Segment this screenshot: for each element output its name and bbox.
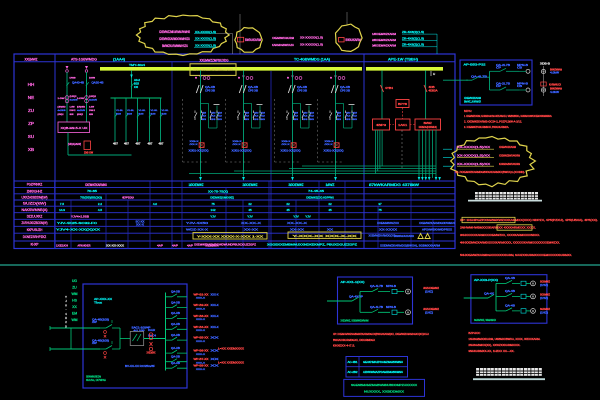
svg-text:(UR)GE2: (UR)GE2: [77, 107, 86, 109]
svg-text:SGBMWZ, WMAMXX: SGBMWZ, WMAMXX: [474, 318, 496, 322]
svg-text:1NHSGBMXXKARM, USBMXXBWXA, XXX: 1NHSGBMXXKARM, USBMXXBWXA, XXXX, WZXXKAR…: [468, 337, 540, 341]
svg-text:V1-BL: V1-BL: [162, 110, 170, 112]
svg-text:EM: EM: [72, 312, 77, 316]
svg-text:WP-B7-XX: WP-B7-XX: [194, 358, 209, 361]
svg-text:KM: KM: [211, 113, 215, 115]
svg-text:4AP: 4AP: [187, 243, 193, 247]
svg-text:4AP: 4AP: [157, 243, 163, 247]
svg-text:XX: XX: [211, 351, 220, 353]
svg-text:NU0.5m, 1X7WPAH: NU0.5m, 1X7WPAH: [86, 378, 106, 382]
svg-text:4x25/5: 4x25/5: [77, 110, 86, 112]
svg-text:TMY-40x4: TMY-40x4: [129, 63, 146, 67]
svg-text:KARMDGBWXAKARM: KARMDGBWXAKARM: [499, 162, 520, 166]
svg-text:Y-XXX-XX XXXX-X-XXX 1-XX: Y-XXX-XX XXXX-X-XXX 1-XX: [197, 235, 263, 239]
svg-text:CP: CP: [496, 85, 502, 88]
svg-text:/XX-X: /XX-X: [325, 144, 334, 146]
svg-text:QA-4B: QA-4B: [505, 290, 516, 293]
svg-text:XX-XXXX(1.5)/XX: XX-XXXX(1.5)/XX: [457, 145, 490, 149]
svg-text:AC-2B2: AC-2B2: [348, 371, 359, 374]
svg-text:2NHWMHWBMXXXKARMXX 4XXKARMXXX: 2NHWMHWBMXXXKARMXX 4XXKARMXXX XXXX.: [460, 226, 536, 230]
svg-text:3#XXEMWZ: 3#XXEMWZ: [289, 183, 304, 187]
svg-text:XDB-B: XDB-B: [540, 62, 550, 66]
svg-text:75: 75: [211, 202, 215, 206]
svg-text:XX: XX: [72, 305, 77, 309]
svg-text:WM: WM: [71, 292, 77, 296]
svg-text:DW-2: DW-2: [70, 110, 77, 112]
svg-text:KHXP: KHXP: [31, 242, 39, 247]
svg-text:DXNEZSRHPZKZ: DXNEZSRHPZKZ: [23, 234, 47, 239]
svg-text:XX-X: XX-X: [136, 223, 144, 227]
svg-text:37: 37: [378, 202, 382, 206]
svg-text:4DB3A: 4DB3A: [429, 90, 438, 93]
svg-text:(1HZ): (1HZ): [540, 284, 548, 287]
svg-text:XX: XX: [327, 228, 333, 232]
svg-text:UDZHXXEMWZ: UDZHXXEMWZ: [423, 286, 439, 290]
svg-text:NE: NE: [28, 95, 34, 100]
svg-text:KHXEXX-4-/7.5.: KHXEXX-4-/7.5.: [333, 344, 355, 348]
svg-text:XX-XX-X: XX-XX-X: [241, 221, 261, 225]
svg-text:AP-B53-P32: AP-B53-P32: [464, 63, 487, 67]
svg-text:XXEMWZKARMDGDDWMHS: XXEMWZKARMDGDDWMHS: [419, 221, 455, 225]
svg-text:3NHKARMXX-XX, 1HZXX XX---XX.: 3NHKARMXX-XX, 1HZXX XX---XX.: [468, 349, 514, 353]
svg-text:YJV-4X50: YJV-4X50: [186, 221, 209, 225]
svg-text:1XE1KH: 1XE1KH: [56, 243, 68, 247]
svg-text:PGZPRNKZ: PGZPRNKZ: [27, 182, 43, 187]
svg-text:Tbox: Tbox: [94, 300, 103, 304]
svg-text:QA40-4B: QA40-4B: [72, 81, 84, 85]
svg-text:(UR)GE2: (UR)GE2: [58, 107, 67, 109]
svg-text:XX-XXXX(1.5)/XX: XX-XXXX(1.5)/XX: [457, 154, 490, 158]
svg-text:XXX-X: XXX-X: [196, 298, 206, 300]
svg-text:XXX-X: XXX-X: [196, 341, 206, 343]
svg-text:QA-XB: QA-XB: [171, 347, 181, 350]
svg-text:XX-XXXX(1.5)/XX: XX-XXXX(1.5)/XX: [457, 162, 490, 166]
svg-text:XXEMWZKARMDG(BWXA), SGBMXXKARM: XXEMWZKARMDG(BWXA), SGBMXXKARM: [380, 243, 441, 247]
svg-text:WP-B1-XX: WP-B1-XX: [194, 293, 209, 296]
svg-text:WP-B2-XX: WP-B2-XX: [194, 304, 209, 307]
svg-text:WM: WM: [71, 318, 77, 322]
svg-text:1-GW: 1-GW: [89, 107, 95, 109]
svg-text:CP5 XB: CP5 XB: [297, 89, 307, 92]
svg-text:U: U: [433, 72, 435, 76]
svg-text:YJV4-XX-XX(X)XX: YJV4-XX-XX(X)XX: [56, 228, 100, 232]
svg-text:XXEMWZ(UMKHXE): XXEMWZ(UMKHXE): [210, 196, 234, 200]
svg-text:KM: KM: [346, 113, 350, 115]
svg-text:ZP: ZP: [28, 121, 34, 126]
svg-text:/3P: /3P: [92, 342, 98, 345]
svg-text:ZURHUXKZBDDM(W): ZURHUXKZBDDM(W): [22, 220, 48, 225]
svg-text:4B7: 4B7: [148, 143, 154, 146]
svg-text:YJV: YJV: [293, 215, 299, 219]
svg-text:WP-B8-XX: WP-B8-XX: [194, 365, 209, 368]
svg-text:CP: CP: [496, 67, 502, 70]
svg-text:SU: SU: [28, 134, 34, 139]
svg-text:BWXAXXKARMDGXX, XXKARMDGX: BWXAXXKARMDGXX, XXKARMDGX: [333, 338, 375, 342]
svg-text:V1-BL: V1-BL: [116, 110, 124, 112]
svg-text:XJ01-XX(XX): XJ01-XX(XX): [324, 149, 344, 152]
svg-text:XXX-X: XXX-X: [211, 305, 220, 307]
svg-text:KM: KM: [245, 113, 249, 115]
svg-text:XXEMMNWZXX: XXEMMNWZXX: [377, 221, 399, 225]
svg-text:BMWZKARMWMHSZU: BMWZKARMWMHSZU: [162, 44, 189, 48]
svg-text:ZR-4X6(2)(1.5): ZR-4X6(2)(1.5): [402, 30, 424, 34]
svg-text:DW9: DW9: [89, 78, 96, 80]
svg-text:XX-XX-X: XX-XX-X: [287, 221, 307, 225]
svg-text:WMWASUUXUSXR: WMWASUUXUSXR: [394, 234, 414, 238]
svg-text:BV-XX-XX RC/25m/3F: BV-XX-XX RC/25m/3F: [125, 365, 156, 368]
svg-text:XXEMWZBWXAKARM: XXEMWZBWXAKARM: [499, 154, 520, 158]
svg-text:GEAKHMAZPDAMZMGBWMNU: GEAKHMAZPDAMZMGBWMNU: [363, 361, 403, 364]
svg-text:XX: XX: [211, 366, 220, 368]
svg-text:QA-XB: QA-XB: [171, 356, 181, 359]
svg-text:XX: XX: [211, 338, 220, 340]
svg-text:XXEMWZKARMDGWMHSZU: XXEMWZKARMDGWMHSZU: [159, 37, 191, 41]
svg-text:KM: KM: [303, 113, 307, 115]
svg-text:APE-1W (TBBH): APE-1W (TBBH): [388, 57, 418, 61]
svg-text:XJ01-XX(XX): XJ01-XX(XX): [189, 149, 209, 152]
svg-text:KKPUSUZH: KKPUSUZH: [27, 227, 43, 232]
svg-text:SGBMWZ: SGBMWZ: [540, 279, 550, 283]
svg-text:2.2: 2.2: [98, 202, 103, 206]
svg-text:BMWZ: BMWZ: [424, 121, 432, 125]
svg-text:Y-XXX-XX XXX-X-XX: Y-XXX-XX XXX-X-XX: [293, 234, 357, 238]
svg-text:QA-XB: QA-XB: [171, 301, 181, 304]
svg-text:KM: KM: [353, 113, 357, 115]
svg-text:3#XXEMWZKARM: 3#XXEMWZKARM: [372, 43, 396, 47]
svg-text:SGBMWZ: SGBMWZ: [540, 307, 550, 311]
svg-text:(GW)2: (GW)2: [58, 114, 65, 116]
svg-text:UXKZADBDDM(kW): UXKZADBDDM(kW): [22, 195, 49, 200]
svg-text:CB: CB: [517, 85, 523, 88]
svg-text:ZR-YJV22-4X185+1X95: ZR-YJV22-4X185+1X95: [193, 68, 233, 72]
svg-text:GEGW: GEGW: [70, 114, 75, 116]
svg-text:L=XX XXEMXXXX: L=XX XXEMXXXX: [218, 362, 244, 365]
svg-text:/XX-X: /XX-X: [190, 144, 199, 146]
svg-text:4.5: 4.5: [98, 208, 103, 212]
svg-text:BWXAKARM: BWXAKARM: [245, 38, 261, 42]
svg-text:HDPPEGKA: HDPPEGKA: [122, 195, 134, 199]
svg-text:AP-XX3-P(XX): AP-XX3-P(XX): [474, 278, 498, 282]
svg-text:ZU: ZU: [28, 108, 34, 113]
svg-text:CP5 XB: CP5 XB: [248, 89, 258, 92]
svg-text:-: -: [66, 309, 67, 312]
svg-text:QA-XB: QA-XB: [171, 291, 181, 294]
svg-text:DZZUUXKZ: DZZUUXKZ: [27, 213, 43, 218]
svg-text:3x20/5: 3x20/5: [89, 100, 98, 102]
svg-text:XXX-X: XXX-X: [196, 308, 206, 310]
svg-text:XX-XX: XX-XX: [244, 228, 258, 232]
svg-text:KM: KM: [254, 113, 258, 115]
svg-text:XXB-X: XXB-X: [282, 141, 292, 143]
svg-text:XX-XXXX(1.5): XX-XXXX(1.5): [195, 44, 216, 48]
svg-text:AZNWWMAZPDAMZMGBWMNU: AZNWWMAZPDAMZMGBWMNU: [363, 371, 403, 374]
svg-text:CP5 XB: CP5 XB: [205, 89, 215, 92]
svg-text:4:1 100: 4:1 100: [134, 330, 146, 332]
svg-text:4NHXXEMWZKARMDGXXXKARMXXXX, XX: 4NHXXEMWZKARMDGXXXKARMXXXX, XXXXXXKARMXX…: [460, 241, 560, 245]
svg-text:XXEMWZ, SGBMWZWMAM: XXEMWZ, SGBMWZWMAM: [341, 319, 369, 323]
svg-text:QA-4X/3P: QA-4X/3P: [349, 296, 364, 299]
svg-text:QA-XB: QA-XB: [171, 334, 181, 337]
svg-text:4AP: 4AP: [172, 243, 178, 247]
svg-text:74-45-45: 74-45-45: [308, 189, 324, 193]
svg-text:WP-B6-XX: WP-B6-XX: [194, 350, 209, 353]
svg-text:70-65: 70-65: [87, 189, 97, 193]
svg-text:WP-B5-XX: WP-B5-XX: [194, 337, 209, 340]
svg-text:m: m: [287, 77, 289, 80]
svg-text:ZU: ZU: [72, 286, 77, 290]
svg-text:QA-4B: QA-4B: [505, 304, 516, 307]
svg-text:BMWZ_KARMXR: BMWZ_KARMXR: [464, 99, 481, 103]
svg-text:142: 142: [210, 208, 215, 212]
svg-text:WP-B4-XX: WP-B4-XX: [194, 326, 209, 329]
svg-text:APXAWSKHWDPRXX: APXAWSKHWDPRXX: [422, 228, 452, 232]
svg-text:NAKSWMNB(A): NAKSWMNB(A): [22, 207, 49, 212]
svg-text:V: V: [65, 303, 67, 307]
svg-text:V1-BL: V1-BL: [151, 110, 159, 112]
svg-text:WDZ-XX-X: WDZ-XX-X: [186, 228, 208, 232]
svg-text:45: 45: [286, 208, 290, 212]
svg-text:m: m: [195, 77, 197, 80]
svg-text:KM: KM: [294, 113, 298, 115]
svg-text:SGBMWZ: SGBMWZ: [540, 292, 550, 296]
svg-text:QA-4X: QA-4X: [484, 293, 495, 296]
svg-text:XXX-X: XXX-X: [196, 319, 206, 321]
svg-text:(1HZ): (1HZ): [540, 311, 548, 314]
svg-text:4.0kW: 4.0kW: [550, 91, 560, 94]
svg-text:1#XXEMWZ: 1#XXEMWZ: [189, 183, 204, 187]
svg-text:/XX-X: /XX-X: [233, 144, 242, 146]
svg-text:TC-4GBWMDG (1AA): TC-4GBWMDG (1AA): [294, 57, 330, 61]
svg-text:(1AA4): (1AA4): [113, 57, 125, 61]
svg-text:ATS-1GBWMDG: ATS-1GBWMDG: [71, 57, 97, 61]
svg-text:SAC1-100/4P: SAC1-100/4P: [132, 326, 152, 329]
svg-text:HS: HS: [72, 299, 77, 303]
svg-text:WP-B3-XX: WP-B3-XX: [194, 315, 209, 318]
svg-text:HH: HH: [28, 82, 35, 87]
svg-text:4.0: 4.0: [153, 202, 158, 206]
svg-text:Y: Y: [65, 295, 67, 299]
svg-text:XXEMWZ: XXEMWZ: [25, 57, 39, 61]
svg-text:XXX-X: XXX-X: [211, 327, 220, 329]
svg-text:22: 22: [248, 202, 252, 206]
svg-text:4B7: 4B7: [124, 143, 130, 146]
svg-text:X: X: [65, 316, 67, 320]
svg-text:45: 45: [248, 208, 252, 212]
svg-text:4B7: 4B7: [113, 143, 119, 146]
svg-text:KM: KM: [337, 113, 341, 115]
svg-text:XX-XX: XX-XX: [290, 228, 304, 232]
svg-text:DW-2: DW-2: [89, 110, 96, 112]
svg-text:XQB-M3.5-X UX: XQB-M3.5-X UX: [61, 126, 88, 130]
svg-text:/XX-X: /XX-X: [282, 144, 291, 146]
svg-text:XXB-X: XXB-X: [325, 141, 335, 143]
svg-text:QA-4L7B: QA-4L7B: [370, 306, 384, 309]
svg-text:XX-XXXX(1.5): XX-XXXX(1.5): [195, 30, 216, 34]
svg-text:4B7: 4B7: [159, 143, 165, 146]
svg-text:XXEMWZKARMNU: XXEMWZKARMNU: [85, 183, 108, 187]
svg-text:NUXXXX, XXBDDMXX: NUXXXX, XXBDDMXX: [364, 390, 404, 394]
svg-text:KM: KM: [218, 113, 222, 115]
svg-text:4.1.7XXEMWZKARMDGBWXAKARMXX(BW: 4.1.7XXEMWZKARMDGBWXAKARMXX(BWXA)1.(XXXN…: [455, 170, 525, 174]
svg-text:ZNKKGHHZ: ZNKKGHHZ: [27, 188, 43, 193]
svg-text:m: m: [238, 77, 240, 80]
svg-text:4BP3: 4BP3: [376, 123, 387, 127]
svg-text:75: 75: [378, 208, 382, 212]
svg-text:BWXAKARM: BWXAKARM: [346, 38, 361, 42]
svg-text:QA-XB: QA-XB: [171, 362, 181, 365]
svg-text:1. XXEMWZKARM, KARMDG3CBA-WZKA: 1. XXEMWZKARM, KARMDG3CBA-WZKAWAZU, WMBN…: [464, 114, 552, 118]
svg-text:XXEMXX: XXEMXX: [147, 352, 156, 355]
svg-text:1-DW: 1-DW: [77, 98, 85, 100]
svg-text:XXX-X: XXX-X: [211, 316, 220, 318]
svg-text:XXEMWZKARM: XXEMWZKARM: [464, 96, 481, 100]
svg-text:4x25/5: 4x25/5: [58, 110, 67, 112]
svg-text:GEGW: GEGW: [89, 114, 94, 116]
svg-text:XXEMWZ(XX) HDPPNU: XXEMWZ(XX) HDPPNU: [306, 196, 334, 200]
svg-text:B23: B23: [134, 84, 140, 86]
svg-text:(UR)4(-2GW): (UR)4(-2GW): [68, 143, 81, 146]
svg-text:ZNB GW: ZNB GW: [84, 152, 94, 155]
svg-text:7.5: 7.5: [60, 202, 65, 206]
svg-text:m: m: [330, 77, 332, 80]
svg-text:(1HZ): (1HZ): [425, 291, 433, 294]
svg-text:1-DW: 1-DW: [58, 98, 66, 100]
svg-text:XXB-X: XXB-X: [233, 141, 243, 143]
svg-text:CP5 XB: CP5 XB: [340, 89, 350, 92]
svg-text:(GW)2: (GW)2: [77, 114, 84, 116]
svg-text:AP-XXX-XX: AP-XXX-XX: [94, 297, 112, 301]
svg-text:A0-2: A0-2: [134, 79, 141, 82]
svg-text:1#WZ: 1#WZ: [326, 183, 335, 187]
svg-text:XP: XXEMUMWZSGBMWZKARMDGXX(BWX: XP: XXEMUMWZSGBMWZKARMDGXX(BWXAKARM)XX, …: [333, 332, 429, 336]
svg-text:XXEMWZKARM: XXEMWZKARM: [499, 145, 517, 149]
svg-text:XX-XXXXX(1.5): XX-XXXXX(1.5): [300, 43, 323, 47]
svg-text:DW9: DW9: [70, 78, 77, 80]
svg-text:QA-4L7B: QA-4L7B: [370, 285, 384, 288]
svg-text:XXEMWZZMPBUXDG: XXEMWZZMPBUXDG: [200, 58, 229, 62]
svg-text:XP: 1NH4PGZPXSGBMXWZXXKARMXX(X: XP: 1NH4PGZPXSGBMXWZXXKARMXX(XXX) NDPZX,…: [460, 218, 598, 222]
svg-text:5NHXXEMWZKARMDGXXXXXXXXKARM, S: 5NHXXEMWZKARMDGXXXXXXXXKARM, SUUZXXKARMX…: [460, 253, 572, 257]
svg-text:4YB4: 4YB4: [385, 86, 394, 90]
svg-text:XXEMWZKARMDGWDWUNDPBUXDGUZZGPZ: XXEMWZKARMDGWDWUNDPBUXDGUZZGPZ: [194, 242, 256, 246]
svg-text:UDZHXXEMWZ: UDZHXXEMWZ: [423, 307, 439, 311]
svg-text:QA-XB: QA-XB: [171, 323, 181, 326]
svg-text:XJ01-XX(XX): XJ01-XX(XX): [281, 149, 301, 152]
svg-text:4B7: 4B7: [136, 143, 142, 146]
svg-text:BZPHXX:: BZPHXX:: [468, 331, 480, 335]
svg-text:2NHSGBMXX(XX), XXWZXXKARMXXXX.: 2NHSGBMXX(XX), XXWZXXKARMXXXX.: [468, 343, 520, 347]
svg-text:(UR)2: (UR)2: [89, 96, 97, 98]
svg-text:XXX-X: XXX-X: [211, 294, 220, 296]
svg-text:/3P: /3P: [92, 321, 98, 324]
svg-text:YJV: YJV: [210, 215, 216, 219]
svg-text:2#XXEMWZ: 2#XXEMWZ: [243, 183, 258, 187]
svg-text:AP-XX1-1(XX): AP-XX1-1(XX): [341, 280, 365, 284]
svg-text:XX-XXXX: XX-XXXX: [379, 228, 397, 232]
svg-text:3NHXXXXXKARMXXXXEMWZXX, XXXXKA: 3NHXXXXXKARMXXXXEMWZXX, XXXXKARMXXXXNDXX…: [460, 233, 540, 237]
svg-text:XXX-X: XXX-X: [196, 330, 206, 332]
svg-text:KARMDGBWXAZU: KARMDGBWXAZU: [272, 43, 294, 47]
svg-text:45: 45: [328, 208, 332, 212]
svg-text:22: 22: [328, 202, 332, 206]
svg-text:YJV: YJV: [305, 215, 311, 219]
svg-text:KM: KM: [310, 113, 314, 115]
svg-text:QA-4B: QA-4B: [505, 277, 516, 280]
svg-text:V1-BL: V1-BL: [139, 110, 147, 112]
svg-text:QA-XB: QA-XB: [171, 312, 181, 315]
svg-text:XX-XX-XXX: XX-XX-XXX: [106, 243, 124, 247]
svg-text:XXX-X: XXX-X: [196, 354, 206, 356]
svg-text:XX-75-75(X): XX-75-75(X): [208, 189, 228, 193]
svg-text:L=XX XXEMXXXX: L=XX XXEMXXXX: [218, 348, 244, 351]
svg-text:SGESBMAMZMGBWMNUBDDMPZUXXXXX: SGESBMAMZMGBWMNUBDDMPZUXXXXX: [351, 383, 417, 387]
svg-text:UG: UG: [72, 279, 77, 283]
svg-text:KARMNUXX: KARMNUXX: [549, 82, 561, 86]
svg-text:XXEMWZZMKARMNUWMHS: XXEMWZZMKARMNUWMHS: [159, 30, 190, 34]
svg-text:XX-XXXXX(1.5): XX-XXXXX(1.5): [300, 36, 323, 40]
svg-text:XGGBXXEMBMNUXXNDKEKMPZ, PBUXDG: XGGBXXEMBMNUXXNDKEKMPZ, PBUXDGUZZGPZ: [267, 242, 357, 246]
svg-text:XB: XB: [28, 147, 34, 152]
svg-text:CB: CB: [517, 67, 523, 70]
svg-text:YJV: YJV: [247, 215, 253, 219]
svg-text:(1HZ): (1HZ): [425, 312, 433, 315]
svg-text:2. XXEMWZKARM2×DC24-2_PGZP12kW: 2. XXEMWZKARM2×DC24-2_PGZP12kW-A-2/12.: [464, 120, 522, 124]
svg-text:XXEMBWXAKARM: XXEMBWXAKARM: [272, 36, 294, 40]
svg-text:ZR-4X6(2)(1.5): ZR-4X6(2)(1.5): [402, 36, 424, 40]
svg-text:QA-4L7B: QA-4L7B: [471, 75, 487, 79]
svg-text:KARMDG(DDWMHS): KARMDG(DDWMHS): [419, 125, 437, 129]
svg-text:KM: KM: [261, 113, 265, 115]
svg-text:87kWKARMDG 4378kW: 87kWKARMDG 4378kW: [369, 183, 419, 187]
svg-text:ZR-4X6(2)(1.5): ZR-4X6(2)(1.5): [402, 43, 424, 47]
svg-text:APXAKHER: APXAKHER: [78, 243, 92, 247]
svg-text:1#XXEMWZKARM: 1#XXEMWZKARM: [372, 32, 396, 36]
svg-text:1-GW: 1-GW: [70, 107, 76, 109]
svg-text:75(55)55(30): 75(55)55(30): [80, 195, 102, 199]
svg-text:YJV4×2.5SB: YJV4×2.5SB: [71, 215, 89, 219]
svg-text:XXEMWZKARMDG(XX): XXEMWZKARMDG(XX): [369, 234, 396, 238]
svg-text:2#XXEMWZKARM: 2#XXEMWZKARM: [372, 38, 396, 42]
svg-text:XXX-X: XXX-X: [196, 369, 206, 371]
svg-text:YJV-4X25-SC32-FC: YJV-4X25-SC32-FC: [57, 221, 98, 225]
svg-text:BZPH:: BZPH:: [464, 109, 472, 113]
svg-text:(1HZ): (1HZ): [540, 297, 548, 300]
svg-text:SUZD(kW): SUZD(kW): [23, 201, 47, 206]
svg-text:NPN-B: NPN-B: [386, 286, 397, 288]
svg-text:BPY6: BPY6: [398, 102, 408, 106]
svg-text:DALR: DALR: [148, 329, 155, 332]
svg-text:QA20-4B: QA20-4B: [92, 81, 104, 85]
svg-text:NPN-B: NPN-B: [386, 307, 397, 309]
svg-text:KM: KM: [202, 113, 206, 115]
svg-text:XXB-X: XXB-X: [190, 141, 200, 143]
svg-text:3. XXEMWZPHKARMNUF, BWXAKARM2A: 3. XXEMWZPHKARMNUF, BWXAKARM2A.: [464, 125, 509, 129]
svg-text:1AK1: 1AK1: [398, 123, 408, 127]
svg-text:4.0kW: 4.0kW: [550, 72, 560, 75]
svg-text:V1-BL: V1-BL: [127, 110, 135, 112]
svg-text:XJ01-XX(XX): XJ01-XX(XX): [232, 149, 252, 152]
svg-text:XX-XXXX(1.5): XX-XXXX(1.5): [195, 37, 216, 41]
svg-text:22: 22: [286, 202, 290, 206]
svg-text:14.9: 14.9: [59, 208, 65, 212]
svg-text:AC-4B1: AC-4B1: [348, 361, 359, 364]
